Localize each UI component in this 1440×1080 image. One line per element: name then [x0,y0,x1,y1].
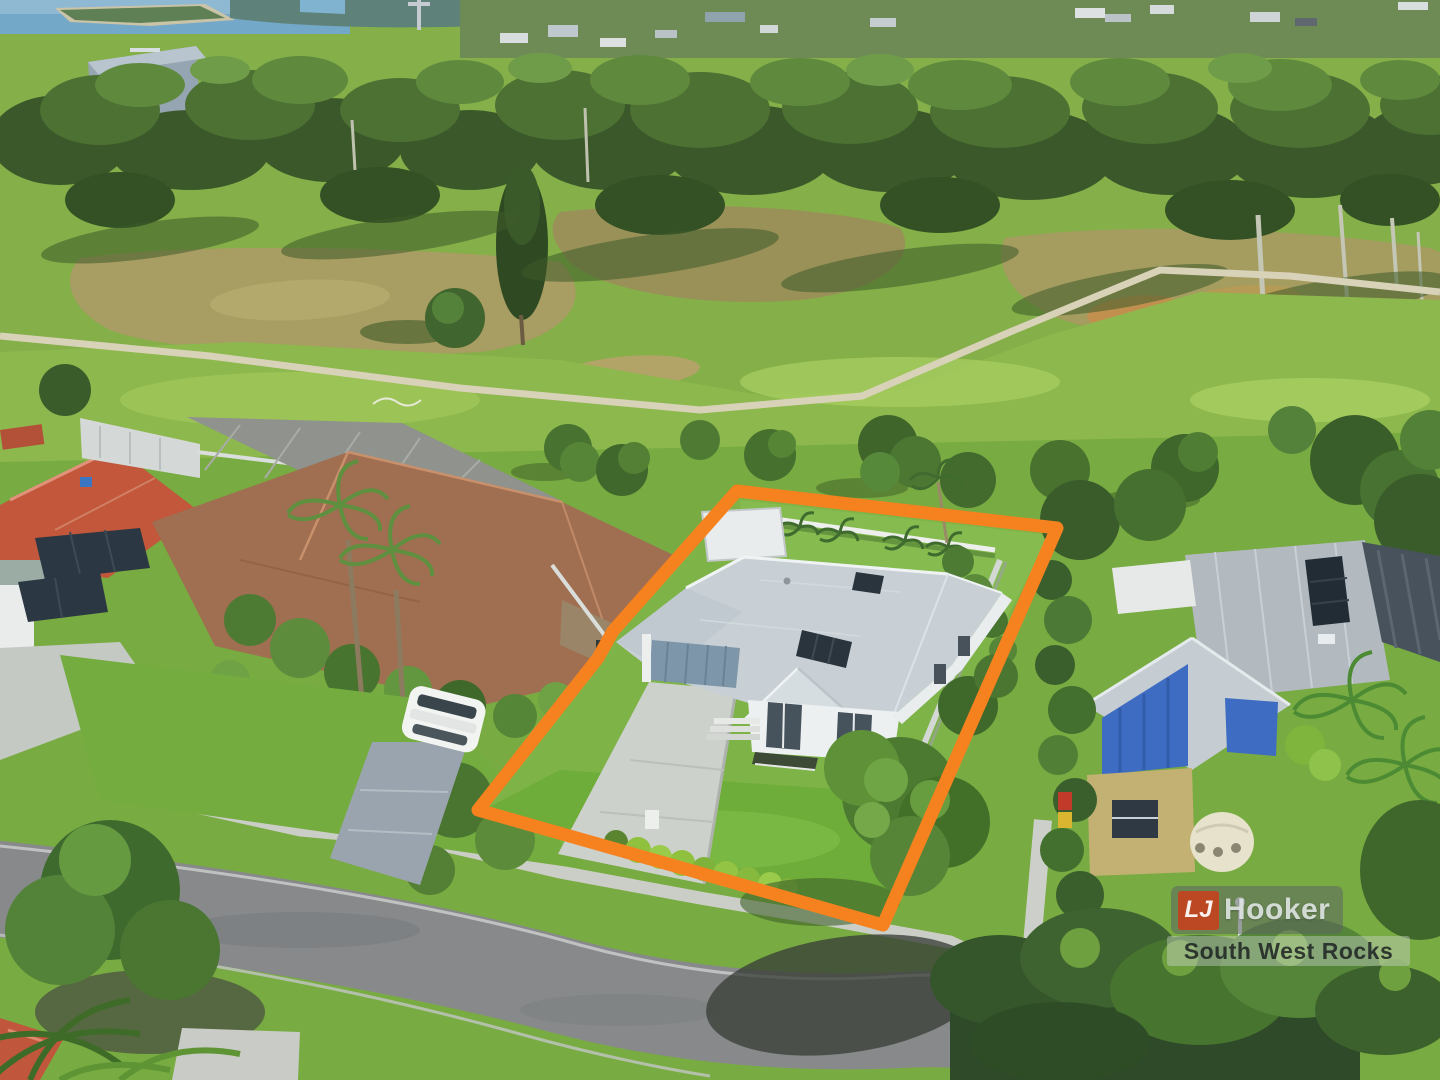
roof-vent [784,578,791,585]
yellow-object [1058,812,1072,828]
right-house-solar [1305,556,1350,626]
blue-bin [80,477,92,487]
distant-town [408,0,1440,58]
office-name: South West Rocks [1184,938,1394,965]
aerial-photo: LJ Hooker South West Rocks [0,0,1440,1080]
water-tank [1190,812,1254,872]
ljhooker-logo-tile: LJ [1178,891,1219,930]
watermark-office: South West Rocks [1167,936,1410,966]
right-house-flat-roof [1112,560,1196,614]
brand-name: Hooker [1224,893,1330,927]
watermark-ljhooker: LJ Hooker [1171,886,1343,934]
blue-shutter-2 [1225,698,1278,756]
red-object [1058,792,1072,810]
letterbox [645,810,659,829]
skylight [1318,634,1335,644]
front-steps [706,718,760,740]
brand-initials: LJ [1184,896,1212,924]
